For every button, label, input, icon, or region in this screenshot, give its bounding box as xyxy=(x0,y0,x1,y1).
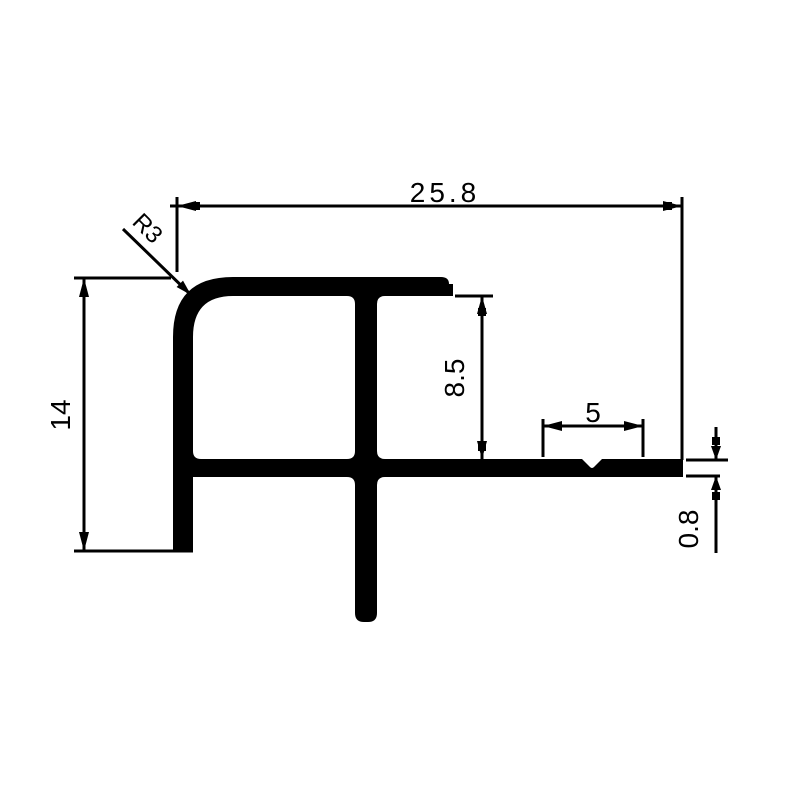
fillet-wall-flange xyxy=(193,451,201,459)
inner-height-label: 8.5 xyxy=(439,359,470,398)
width-label: 25.8 xyxy=(410,177,481,208)
thickness-arrow-down xyxy=(711,446,721,460)
dim-overall-width: 25.8 xyxy=(170,177,682,460)
inner-height-dot-top xyxy=(478,308,486,316)
drawing-page: 25.8 R3 14 8.5 xyxy=(0,0,800,800)
height-arrow-top xyxy=(79,278,89,297)
thickness-label: 0.8 xyxy=(673,510,704,549)
technical-drawing-canvas: 25.8 R3 14 8.5 xyxy=(0,0,800,800)
groove-label: 5 xyxy=(585,397,601,428)
radius-label: R3 xyxy=(127,208,168,249)
width-dot-left xyxy=(192,202,200,210)
thickness-dot-lower xyxy=(712,492,720,500)
dim-inner-height: 8.5 xyxy=(439,296,493,459)
fillet-stem-flange-br xyxy=(377,477,385,485)
fillet-stem-top-l xyxy=(347,296,355,304)
thickness-arrow-up xyxy=(711,476,721,490)
fillet-stem-top-r xyxy=(377,296,385,304)
dim-corner-radius: R3 xyxy=(123,208,191,295)
groove-arrow-left xyxy=(543,421,562,431)
thickness-dot-upper xyxy=(712,437,720,445)
width-dot-right xyxy=(664,202,672,210)
profile-shape xyxy=(173,277,683,622)
profile-wall-and-top-flange xyxy=(173,277,453,552)
inner-height-dot-bottom xyxy=(478,443,486,451)
fillet-stem-flange-tr xyxy=(377,451,385,459)
groove-arrow-right xyxy=(624,421,643,431)
height-label: 14 xyxy=(45,399,76,430)
fillet-stem-flange-bl xyxy=(347,477,355,485)
profile-center-stem xyxy=(355,290,377,622)
dim-overall-height: 14 xyxy=(45,278,193,551)
dim-groove-zone: 5 xyxy=(543,397,643,457)
fillet-stem-flange-tl xyxy=(347,451,355,459)
profile-bottom-flange xyxy=(193,459,683,477)
height-arrow-bottom xyxy=(79,532,89,551)
